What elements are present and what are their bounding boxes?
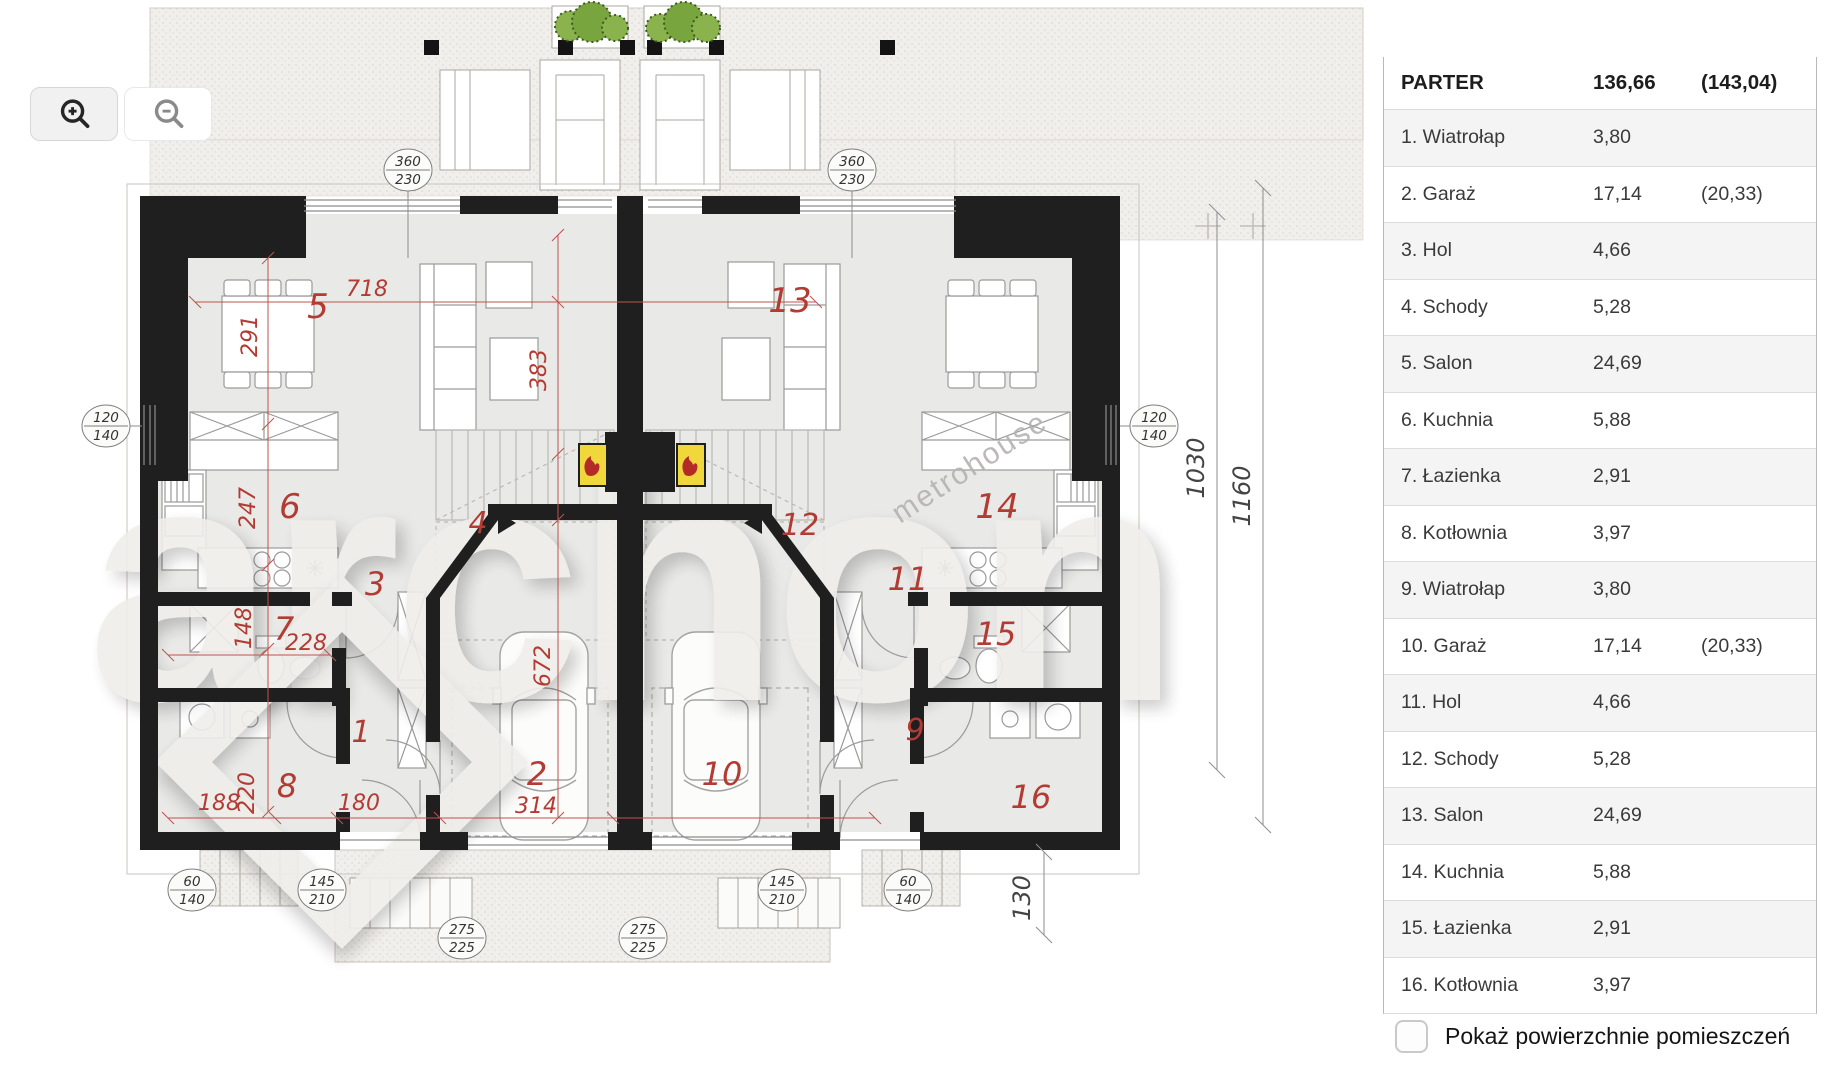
svg-text:360: 360 (839, 154, 865, 170)
svg-text:225: 225 (449, 940, 475, 956)
svg-text:10: 10 (702, 755, 743, 793)
svg-text:140: 140 (1141, 428, 1167, 444)
table-row[interactable]: 11. Hol4,66 (1384, 674, 1816, 731)
svg-text:210: 210 (309, 892, 335, 908)
svg-text:140: 140 (895, 892, 921, 908)
svg-text:230: 230 (395, 172, 421, 188)
svg-text:247: 247 (236, 487, 261, 529)
svg-text:140: 140 (179, 892, 205, 908)
svg-text:291: 291 (238, 315, 263, 357)
table-row[interactable]: 1. Wiatrołap3,80 (1384, 109, 1816, 166)
svg-text:2: 2 (527, 755, 547, 793)
dimension-badge: 275225 (438, 917, 486, 959)
magnifier-plus-icon (54, 94, 94, 134)
svg-text:14: 14 (975, 487, 1018, 527)
svg-text:275: 275 (630, 922, 656, 938)
floor-gross-area: (143,04) (1701, 71, 1816, 95)
svg-text:60: 60 (899, 874, 916, 890)
svg-text:140: 140 (93, 428, 119, 444)
svg-text:672: 672 (531, 645, 556, 687)
table-row[interactable]: 14. Kuchnia5,88 (1384, 844, 1816, 901)
svg-text:11: 11 (888, 560, 929, 598)
table-row[interactable]: 16. Kotłownia3,97 (1384, 957, 1816, 1015)
svg-text:6: 6 (279, 487, 301, 527)
svg-text:210: 210 (769, 892, 795, 908)
svg-text:230: 230 (839, 172, 865, 188)
table-row[interactable]: 2. Garaż17,14(20,33) (1384, 166, 1816, 223)
svg-text:1: 1 (351, 715, 370, 750)
dimension-badge: 360230 (828, 149, 876, 191)
zoom-out-button[interactable] (124, 87, 212, 141)
zoom-in-button[interactable] (30, 87, 118, 141)
table-row[interactable]: 3. Hol4,66 (1384, 222, 1816, 279)
svg-text:1160: 1160 (1228, 465, 1256, 526)
table-row[interactable]: 7. Łazienka2,91 (1384, 448, 1816, 505)
svg-text:718: 718 (346, 277, 388, 302)
table-row[interactable]: 15. Łazienka2,91 (1384, 900, 1816, 957)
svg-text:148: 148 (232, 607, 257, 649)
svg-text:120: 120 (93, 410, 119, 426)
svg-text:188: 188 (198, 791, 240, 816)
svg-text:275: 275 (449, 922, 475, 938)
svg-text:1030: 1030 (1182, 437, 1210, 498)
svg-text:120: 120 (1141, 410, 1167, 426)
svg-text:16: 16 (1011, 778, 1052, 816)
svg-text:180: 180 (338, 791, 380, 816)
table-row[interactable]: 12. Schody5,28 (1384, 731, 1816, 788)
show-areas-label[interactable]: Pokaż powierzchnie pomieszczeń (1445, 1023, 1790, 1050)
svg-text:228: 228 (285, 631, 327, 656)
floor-title: PARTER (1384, 71, 1593, 95)
svg-text:15: 15 (976, 615, 1017, 653)
svg-text:225: 225 (630, 940, 656, 956)
dimension-badge: 145210 (298, 869, 346, 911)
svg-text:8: 8 (277, 767, 297, 805)
table-row[interactable]: 5. Salon24,69 (1384, 335, 1816, 392)
dimension-badge: 120140 (1130, 405, 1178, 447)
page: archon metrohouse (0, 0, 1826, 1080)
svg-text:3: 3 (365, 565, 385, 603)
table-header-row: PARTER 136,66 (143,04) (1384, 57, 1816, 109)
svg-text:9: 9 (905, 713, 924, 748)
room-area-table: PARTER 136,66 (143,04) 1. Wiatrołap3,80 … (1383, 57, 1817, 1014)
svg-text:4: 4 (468, 506, 487, 541)
floor-plan-canvas[interactable]: archon metrohouse (0, 0, 1380, 1080)
svg-text:360: 360 (395, 154, 421, 170)
dimension-badge: 145210 (758, 869, 806, 911)
table-row[interactable]: 9. Wiatrołap3,80 (1384, 561, 1816, 618)
svg-text:314: 314 (515, 794, 557, 819)
dimension-badge: 360230 (384, 149, 432, 191)
svg-text:383: 383 (527, 349, 552, 391)
svg-text:145: 145 (769, 874, 795, 890)
dimension-badge: 275225 (619, 917, 667, 959)
show-areas-row: Pokaż powierzchnie pomieszczeń (1395, 1020, 1790, 1053)
dimension-badge: 120140 (82, 405, 130, 447)
floor-total-area: 136,66 (1593, 71, 1701, 95)
table-row[interactable]: 13. Salon24,69 (1384, 787, 1816, 844)
floor-plan-drawing: archon metrohouse (0, 0, 1380, 1080)
magnifier-minus-icon (148, 94, 188, 134)
show-areas-checkbox[interactable] (1395, 1020, 1428, 1053)
dimension-badge: 60140 (168, 869, 216, 911)
table-row[interactable]: 8. Kotłownia3,97 (1384, 505, 1816, 562)
dimension-badge: 60140 (884, 869, 932, 911)
table-row[interactable]: 4. Schody5,28 (1384, 279, 1816, 336)
svg-text:5: 5 (307, 287, 329, 327)
svg-text:13: 13 (768, 281, 811, 321)
svg-text:60: 60 (183, 874, 200, 890)
svg-text:12: 12 (781, 508, 819, 543)
table-row[interactable]: 10. Garaż17,14(20,33) (1384, 618, 1816, 675)
table-row[interactable]: 6. Kuchnia5,88 (1384, 392, 1816, 449)
svg-text:130: 130 (1008, 875, 1036, 921)
svg-text:145: 145 (309, 874, 335, 890)
